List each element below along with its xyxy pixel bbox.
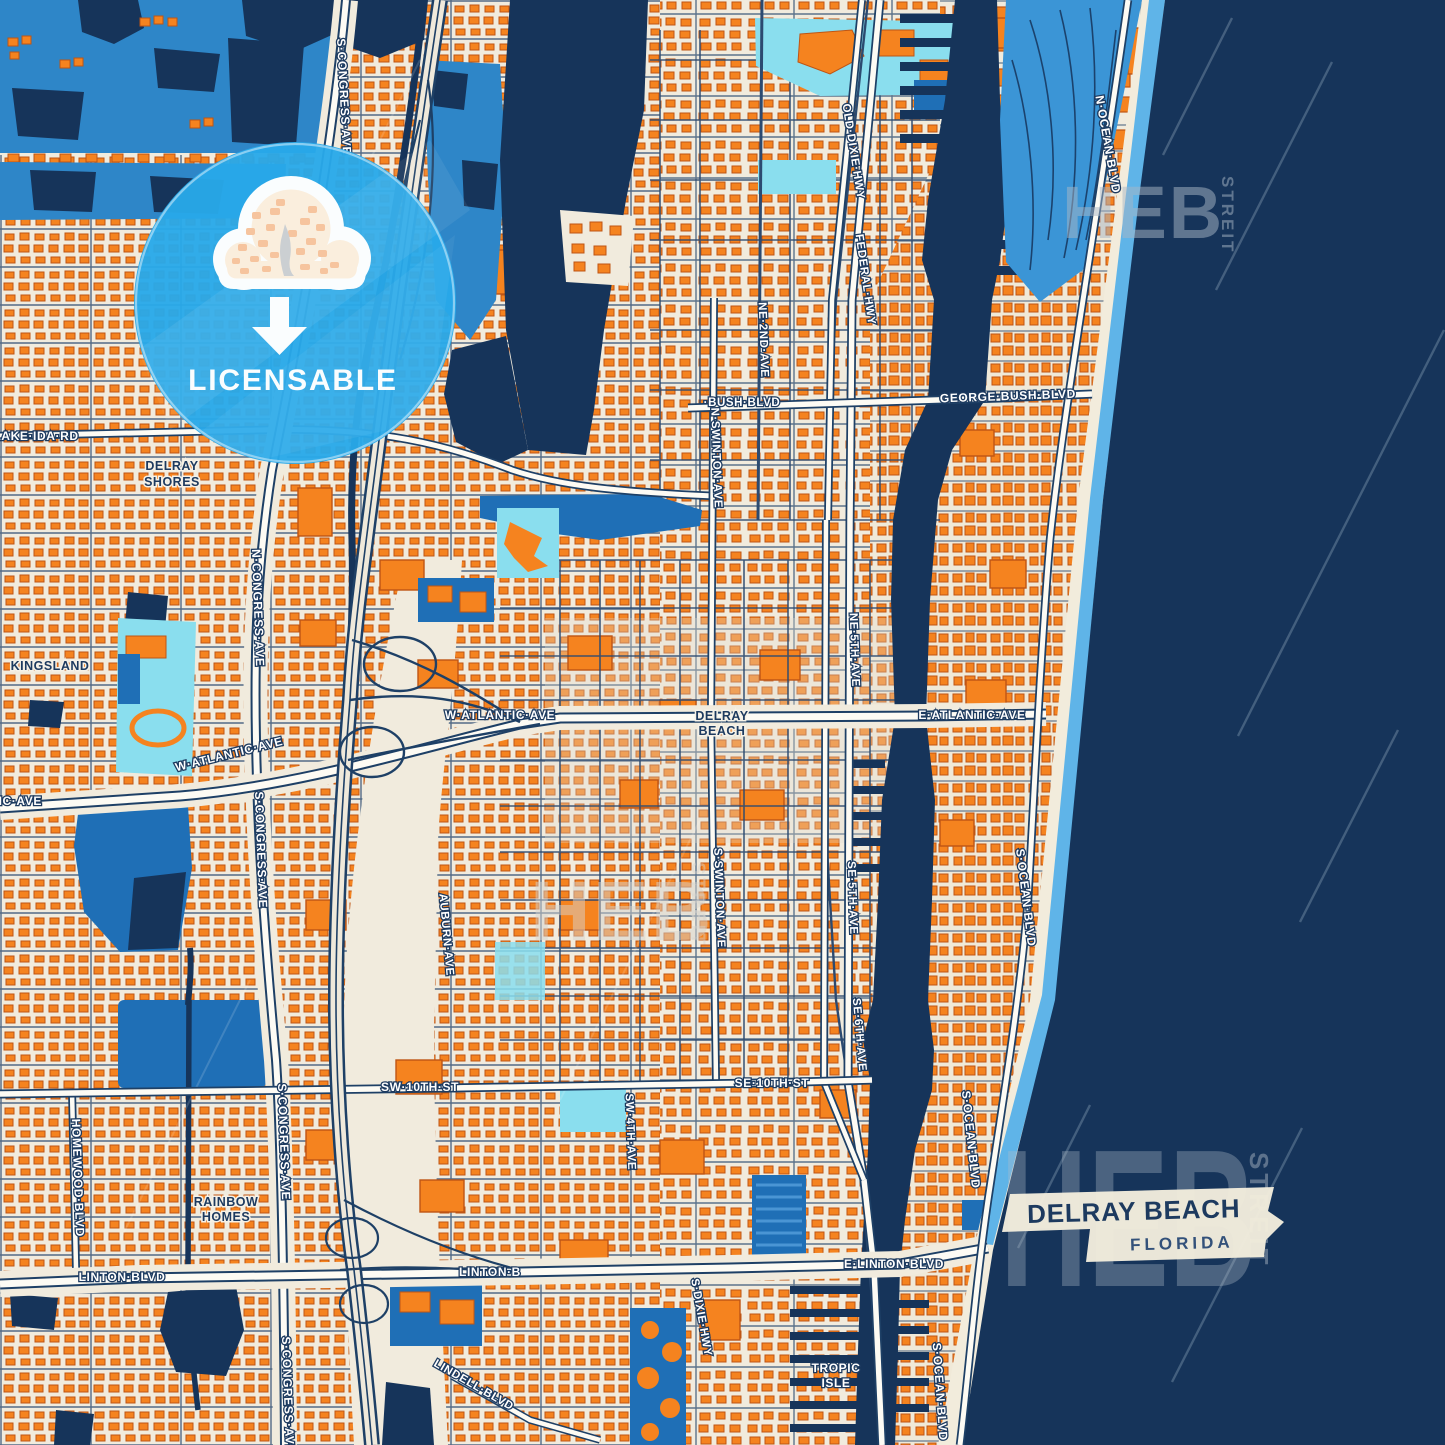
svg-text:·IC·AVE: ·IC·AVE (0, 794, 42, 808)
svg-text:LINTON·B: LINTON·B (459, 1265, 521, 1279)
svg-text:SE·5TH·AVE: SE·5TH·AVE (845, 861, 860, 935)
svg-text:W·ATLANTIC·AVE: W·ATLANTIC·AVE (445, 708, 556, 722)
svg-text:E·ATLANTIC·AVE: E·ATLANTIC·AVE (918, 708, 1025, 722)
svg-text:LAKE·IDA·RD: LAKE·IDA·RD (0, 429, 79, 443)
svg-text:ISLE: ISLE (821, 1376, 850, 1390)
svg-text:E·LINTON·BLVD: E·LINTON·BLVD (844, 1257, 944, 1271)
svg-text:SW·10TH·ST: SW·10TH·ST (381, 1080, 459, 1094)
svg-text:STREIT: STREIT (1218, 176, 1237, 254)
svg-text:STREIT: STREIT (687, 862, 708, 948)
svg-text:HOMES: HOMES (202, 1210, 250, 1224)
svg-text:SHORES: SHORES (144, 475, 200, 489)
svg-text:DELRAY BEACH: DELRAY BEACH (1027, 1193, 1241, 1229)
svg-text:DELRAY: DELRAY (695, 709, 748, 723)
svg-text:·BUSH·BLVD: ·BUSH·BLVD (704, 397, 781, 409)
svg-text:HEB: HEB (1062, 171, 1224, 254)
svg-text:SE·10TH·ST: SE·10TH·ST (735, 1076, 810, 1090)
svg-text:KINGSLAND: KINGSLAND (11, 659, 90, 673)
svg-text:BEACH: BEACH (699, 724, 746, 738)
svg-text:TROPIC: TROPIC (812, 1361, 861, 1375)
svg-text:LICENSABLE: LICENSABLE (188, 364, 398, 397)
svg-text:FLORIDA: FLORIDA (1130, 1233, 1234, 1255)
svg-text:LINTON·BLVD: LINTON·BLVD (79, 1270, 166, 1284)
svg-text:RAINBOW: RAINBOW (194, 1195, 259, 1209)
svg-text:DELRAY: DELRAY (145, 459, 198, 473)
svg-text:HEB: HEB (530, 864, 713, 958)
